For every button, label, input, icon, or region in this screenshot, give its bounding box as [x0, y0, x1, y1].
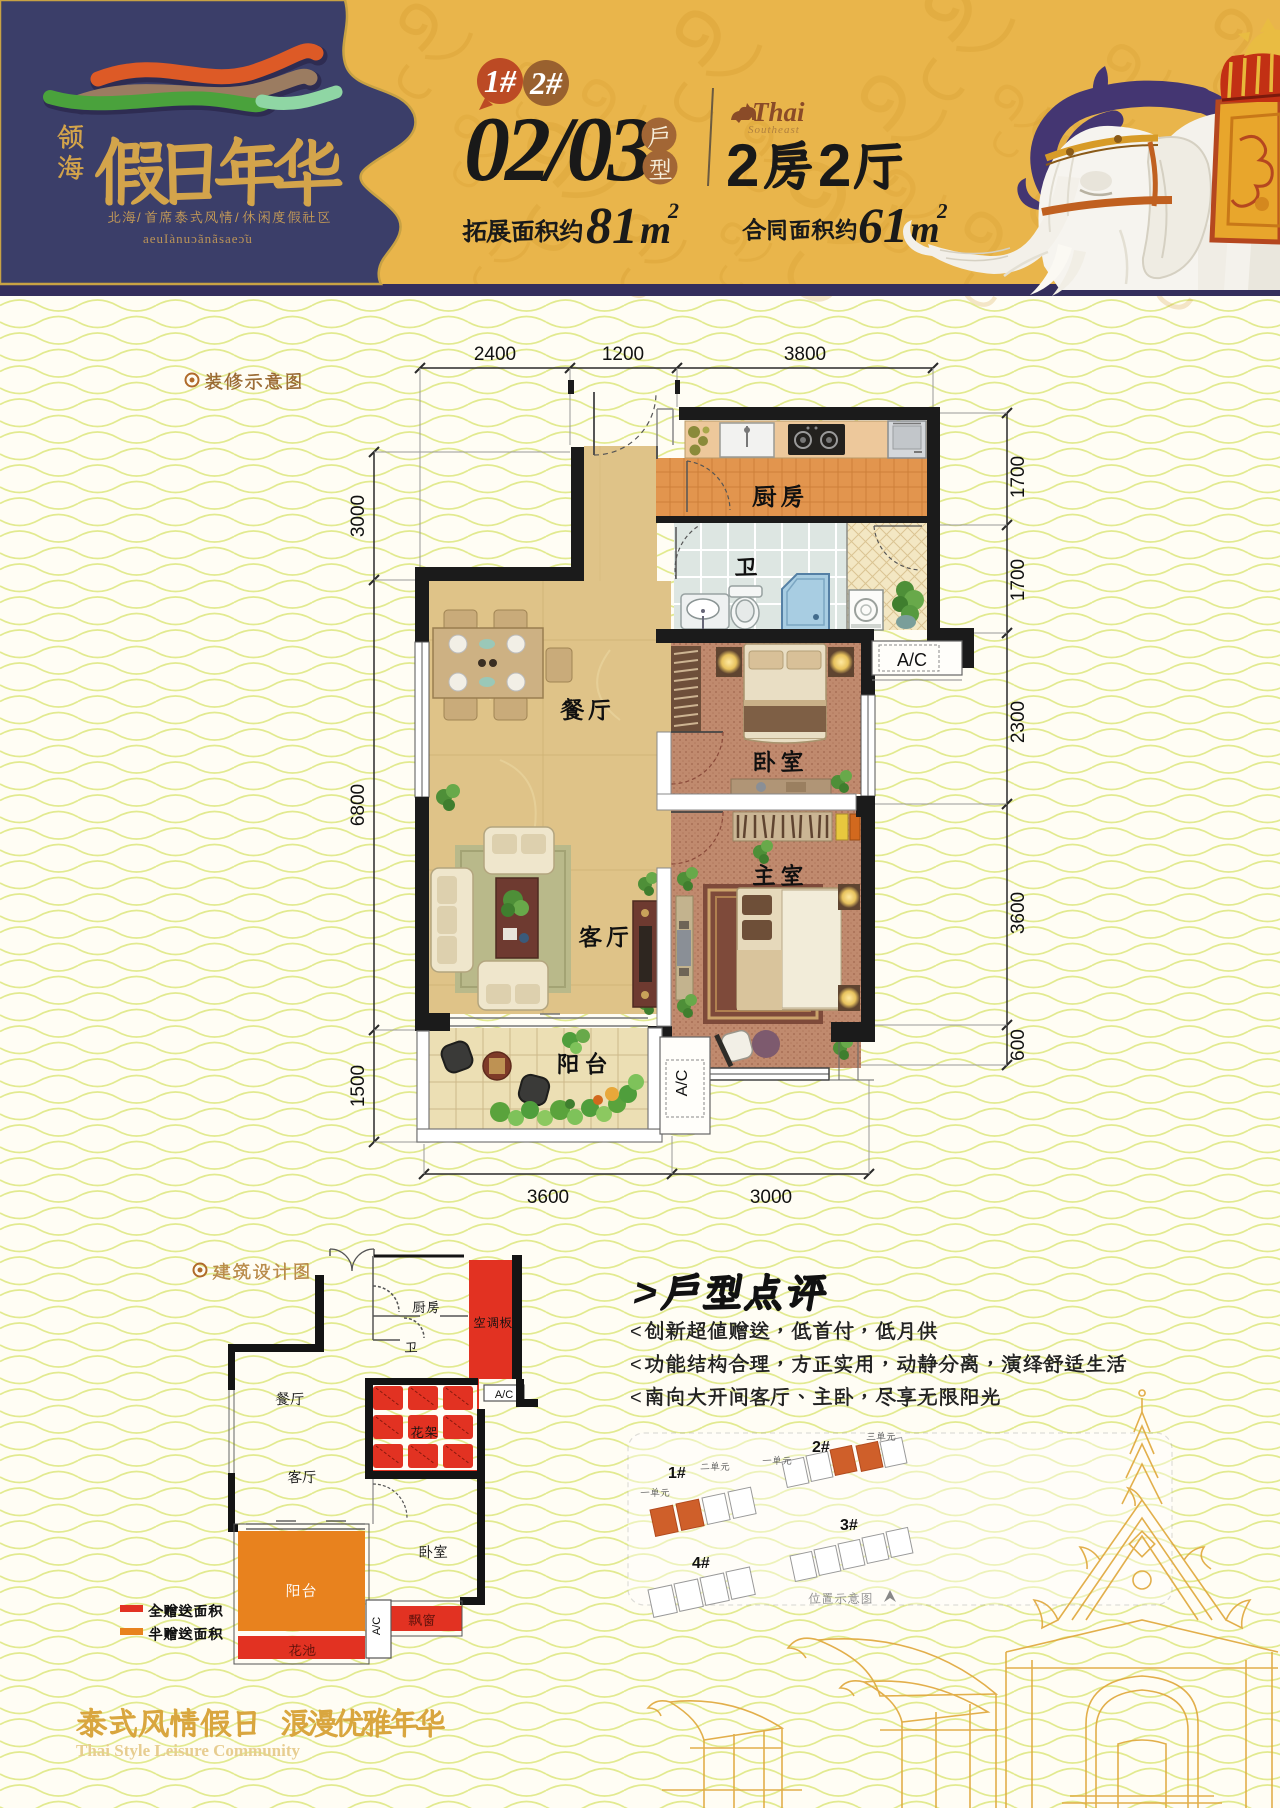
svg-text:aeuIànuɔãnãsaeɔ̃u: aeuIànuɔãnãsaeɔ̃u — [143, 231, 253, 246]
svg-text:<: < — [630, 1387, 642, 1409]
svg-text:2#: 2# — [812, 1439, 830, 1456]
svg-text:1700: 1700 — [1008, 559, 1029, 601]
svg-text:3000: 3000 — [348, 495, 369, 537]
svg-text:2: 2 — [667, 198, 679, 223]
svg-text:1#: 1# — [668, 1465, 686, 1482]
svg-text:4#: 4# — [692, 1555, 710, 1572]
svg-text:81: 81 — [586, 198, 638, 255]
svg-text:2#: 2# — [529, 65, 563, 101]
svg-text:1500: 1500 — [348, 1065, 369, 1107]
svg-text:1700: 1700 — [1008, 456, 1029, 498]
svg-text:2: 2 — [726, 132, 759, 199]
svg-text:1200: 1200 — [602, 344, 644, 365]
svg-text:A/C: A/C — [897, 650, 927, 670]
svg-text:1#: 1# — [484, 63, 517, 99]
svg-text:<: < — [630, 1321, 642, 1343]
svg-text:3600: 3600 — [527, 1187, 569, 1208]
svg-text:A/C: A/C — [371, 1617, 383, 1635]
svg-text:3600: 3600 — [1008, 892, 1029, 934]
svg-text:3#: 3# — [840, 1517, 858, 1534]
svg-text:02/03: 02/03 — [464, 98, 652, 200]
svg-text:A/C: A/C — [495, 1389, 513, 1401]
svg-text:A/C: A/C — [674, 1070, 691, 1097]
svg-text:600: 600 — [1008, 1029, 1029, 1061]
svg-text:Thai: Thai — [752, 97, 805, 127]
svg-text:m: m — [640, 207, 671, 252]
svg-text:3000: 3000 — [750, 1187, 792, 1208]
svg-text:2300: 2300 — [1008, 701, 1029, 743]
svg-text:2: 2 — [818, 132, 851, 199]
svg-text:2: 2 — [936, 199, 948, 223]
svg-text:2400: 2400 — [474, 344, 516, 365]
svg-text:3800: 3800 — [784, 344, 826, 365]
svg-text:6800: 6800 — [348, 784, 369, 826]
svg-text:<: < — [630, 1354, 642, 1376]
svg-text:/: / — [235, 210, 239, 225]
svg-text:/: / — [137, 210, 141, 225]
svg-text:Thai Style Leisure Community: Thai Style Leisure Community — [76, 1741, 301, 1760]
svg-text:61: 61 — [858, 197, 908, 253]
